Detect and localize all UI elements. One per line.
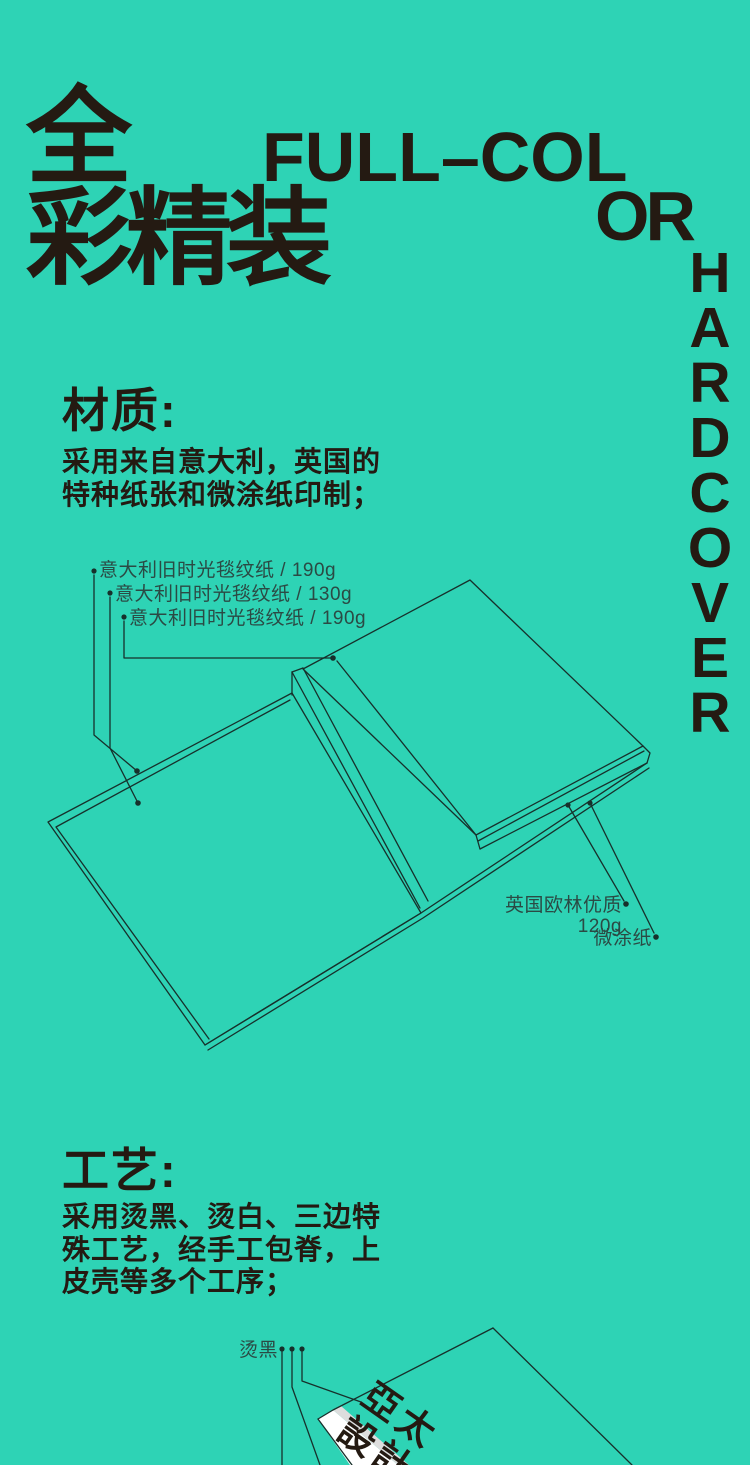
stamp-callout-label: 烫黑 xyxy=(239,1340,278,1361)
product-detail-poster: 全 彩精装 FULL–COL OR H A R D C O V E R 材质: … xyxy=(0,0,750,1465)
open-book-diagram xyxy=(48,568,659,1050)
process-section-heading: 工艺: xyxy=(62,1146,178,1196)
process-section-body: 采用烫黑、烫白、三边特 殊工艺，经手工包脊，上 皮壳等多个工序； xyxy=(62,1201,381,1299)
